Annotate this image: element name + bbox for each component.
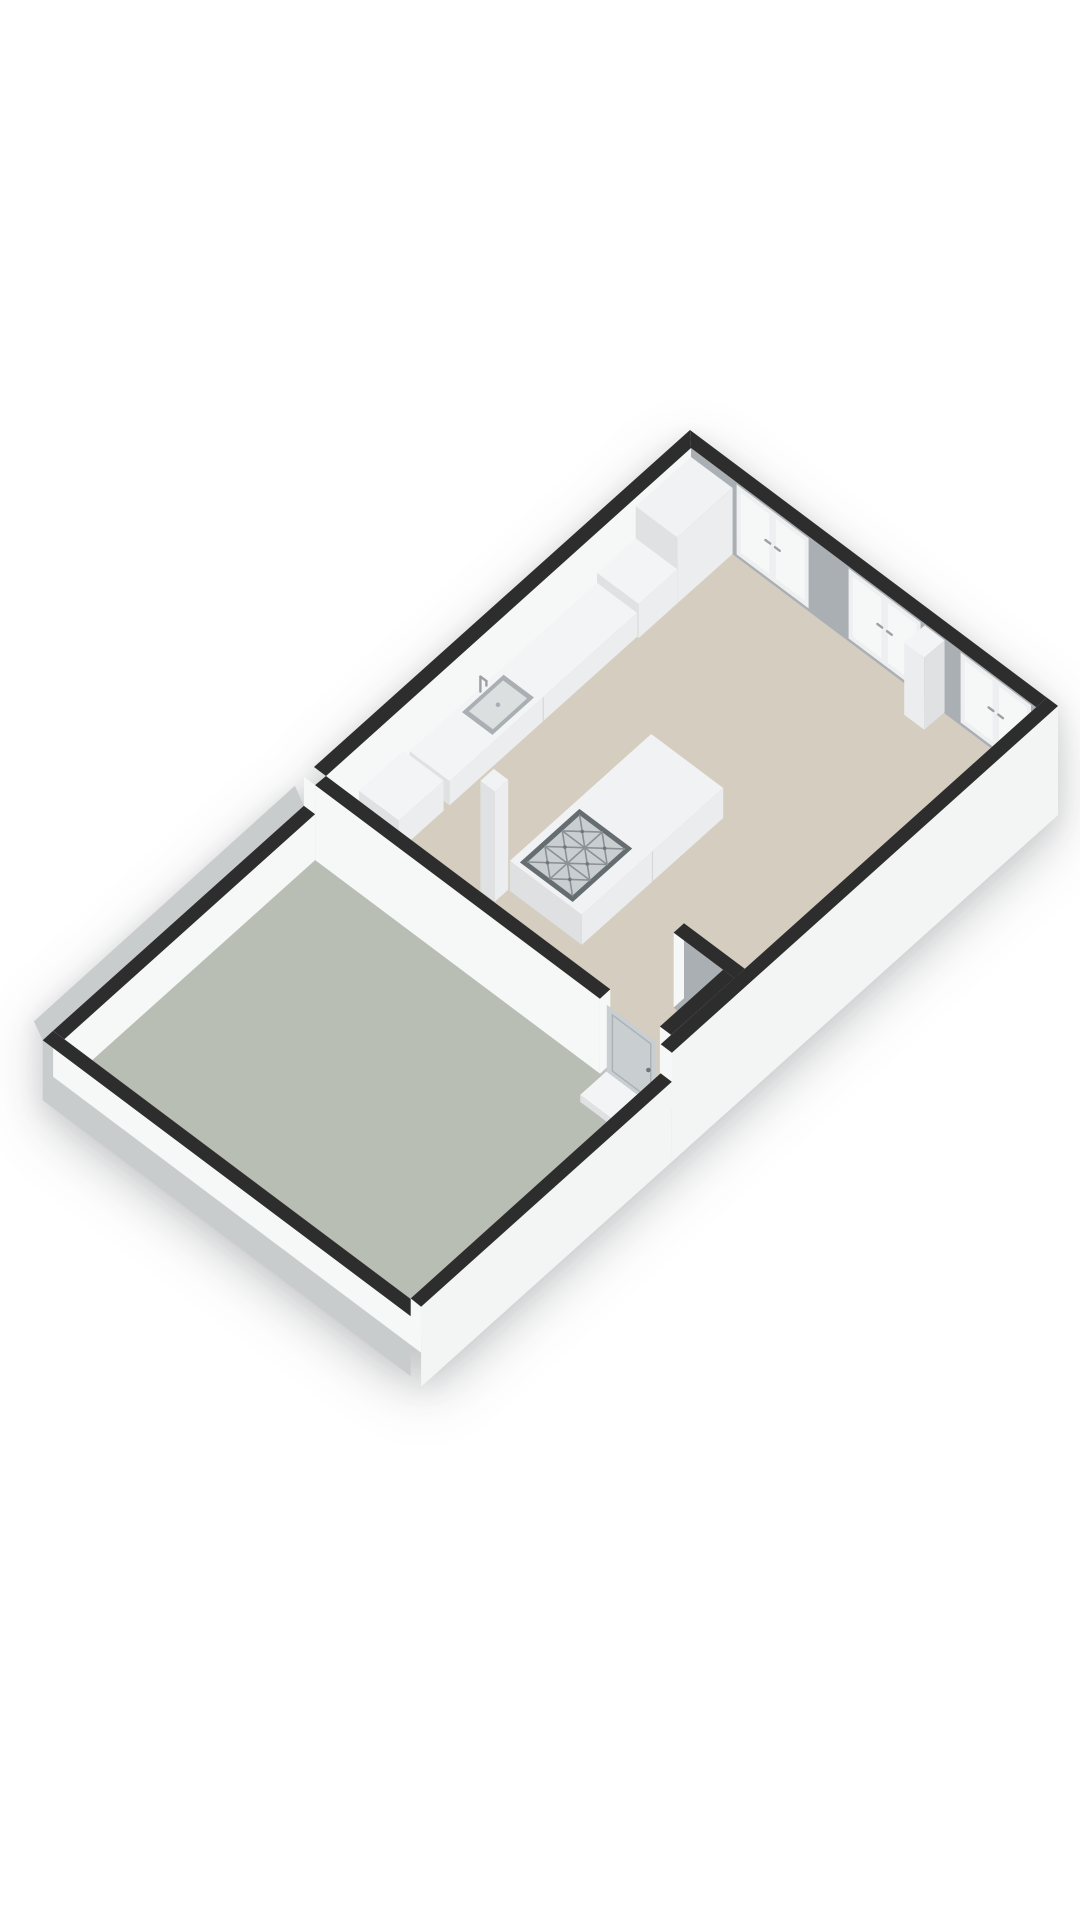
canvas	[0, 0, 1080, 1920]
column-sw-face	[480, 781, 494, 902]
wall-pier	[904, 625, 944, 729]
door-handle-icon	[646, 1068, 651, 1073]
sink-drain	[496, 703, 501, 708]
column-se-face	[495, 780, 508, 902]
floor-plan	[34, 430, 1058, 1387]
pier-sw-face	[904, 643, 924, 730]
floor-plan-render	[0, 0, 1080, 1920]
structural-column	[480, 769, 508, 902]
